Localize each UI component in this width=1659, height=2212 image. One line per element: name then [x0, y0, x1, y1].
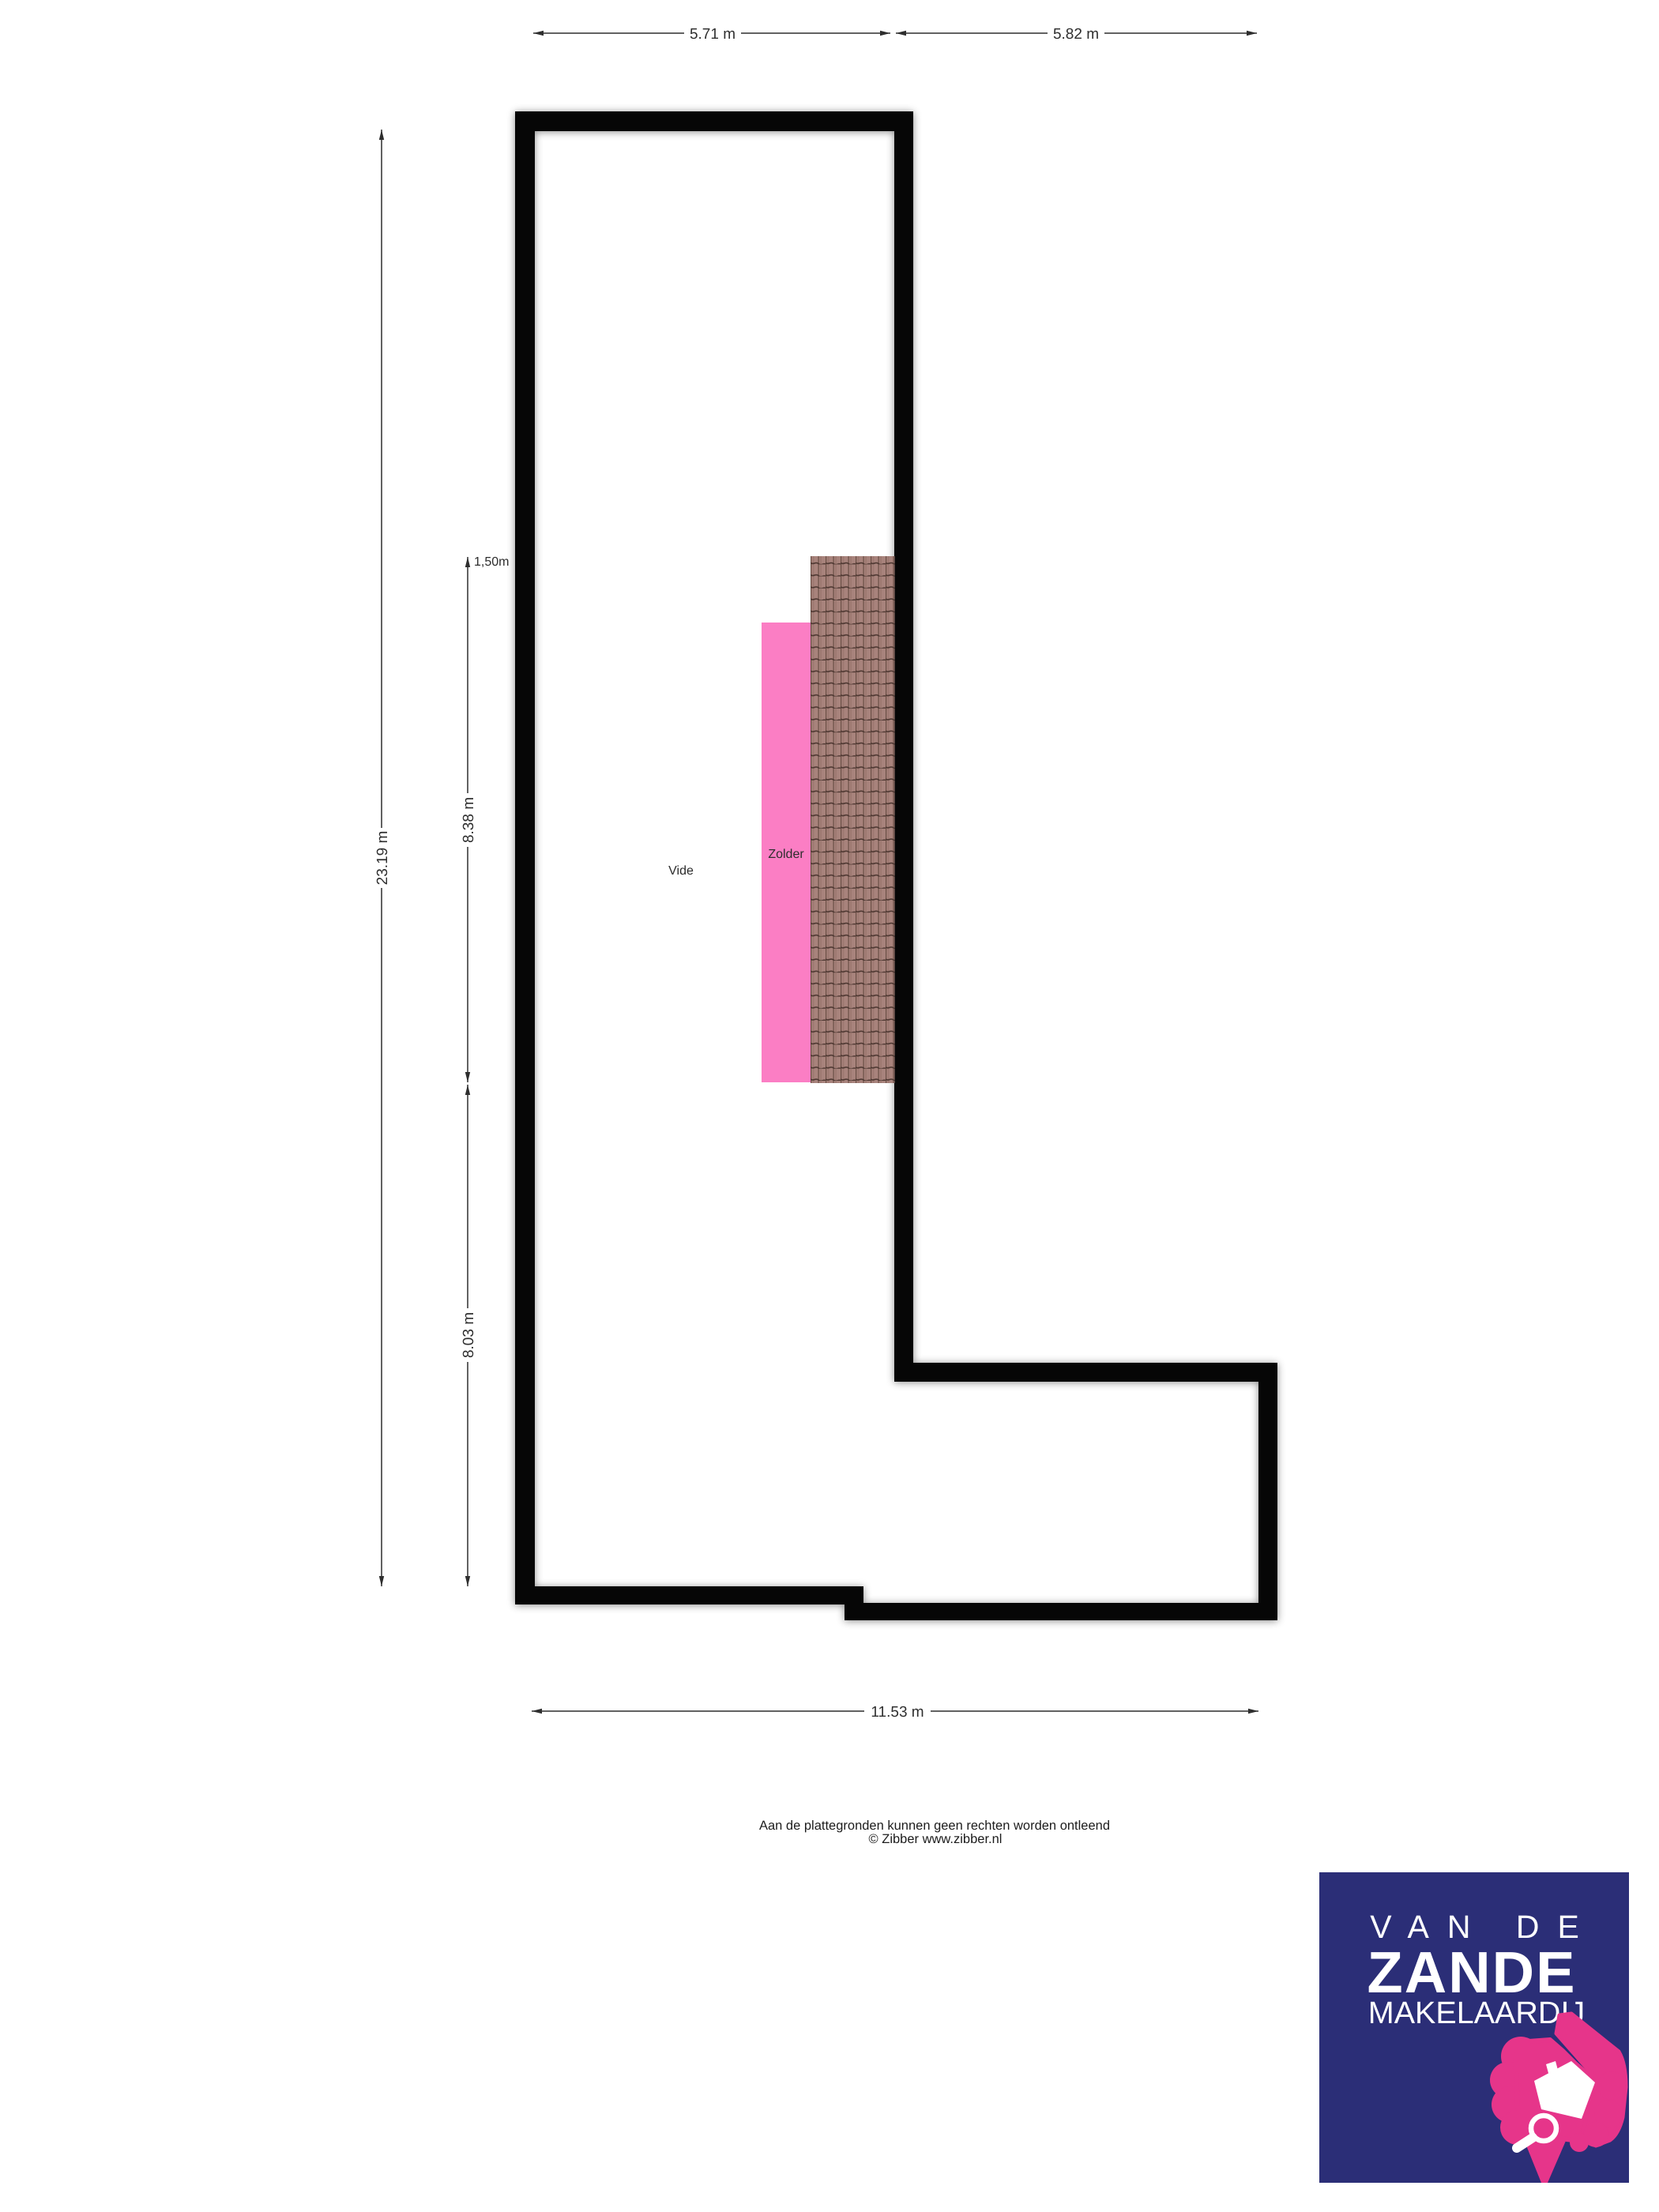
svg-text:1,50m: 1,50m — [474, 555, 509, 569]
svg-text:8.03 m: 8.03 m — [461, 1312, 477, 1358]
svg-text:MAKELAARDIJ: MAKELAARDIJ — [1368, 1996, 1585, 2030]
svg-text:5.71 m: 5.71 m — [690, 26, 735, 43]
svg-text:Vide: Vide — [668, 864, 694, 878]
svg-text:8.38 m: 8.38 m — [461, 797, 477, 843]
svg-text:5.82 m: 5.82 m — [1053, 26, 1099, 43]
svg-text:11.53 m: 11.53 m — [871, 1704, 924, 1721]
svg-text:Zolder: Zolder — [768, 848, 804, 861]
svg-text:© Zibber www.zibber.nl: © Zibber www.zibber.nl — [869, 1832, 1003, 1846]
svg-text:23.19 m: 23.19 m — [374, 831, 391, 886]
svg-text:Aan de plattegronden kunnen ge: Aan de plattegronden kunnen geen rechten… — [759, 1819, 1110, 1833]
